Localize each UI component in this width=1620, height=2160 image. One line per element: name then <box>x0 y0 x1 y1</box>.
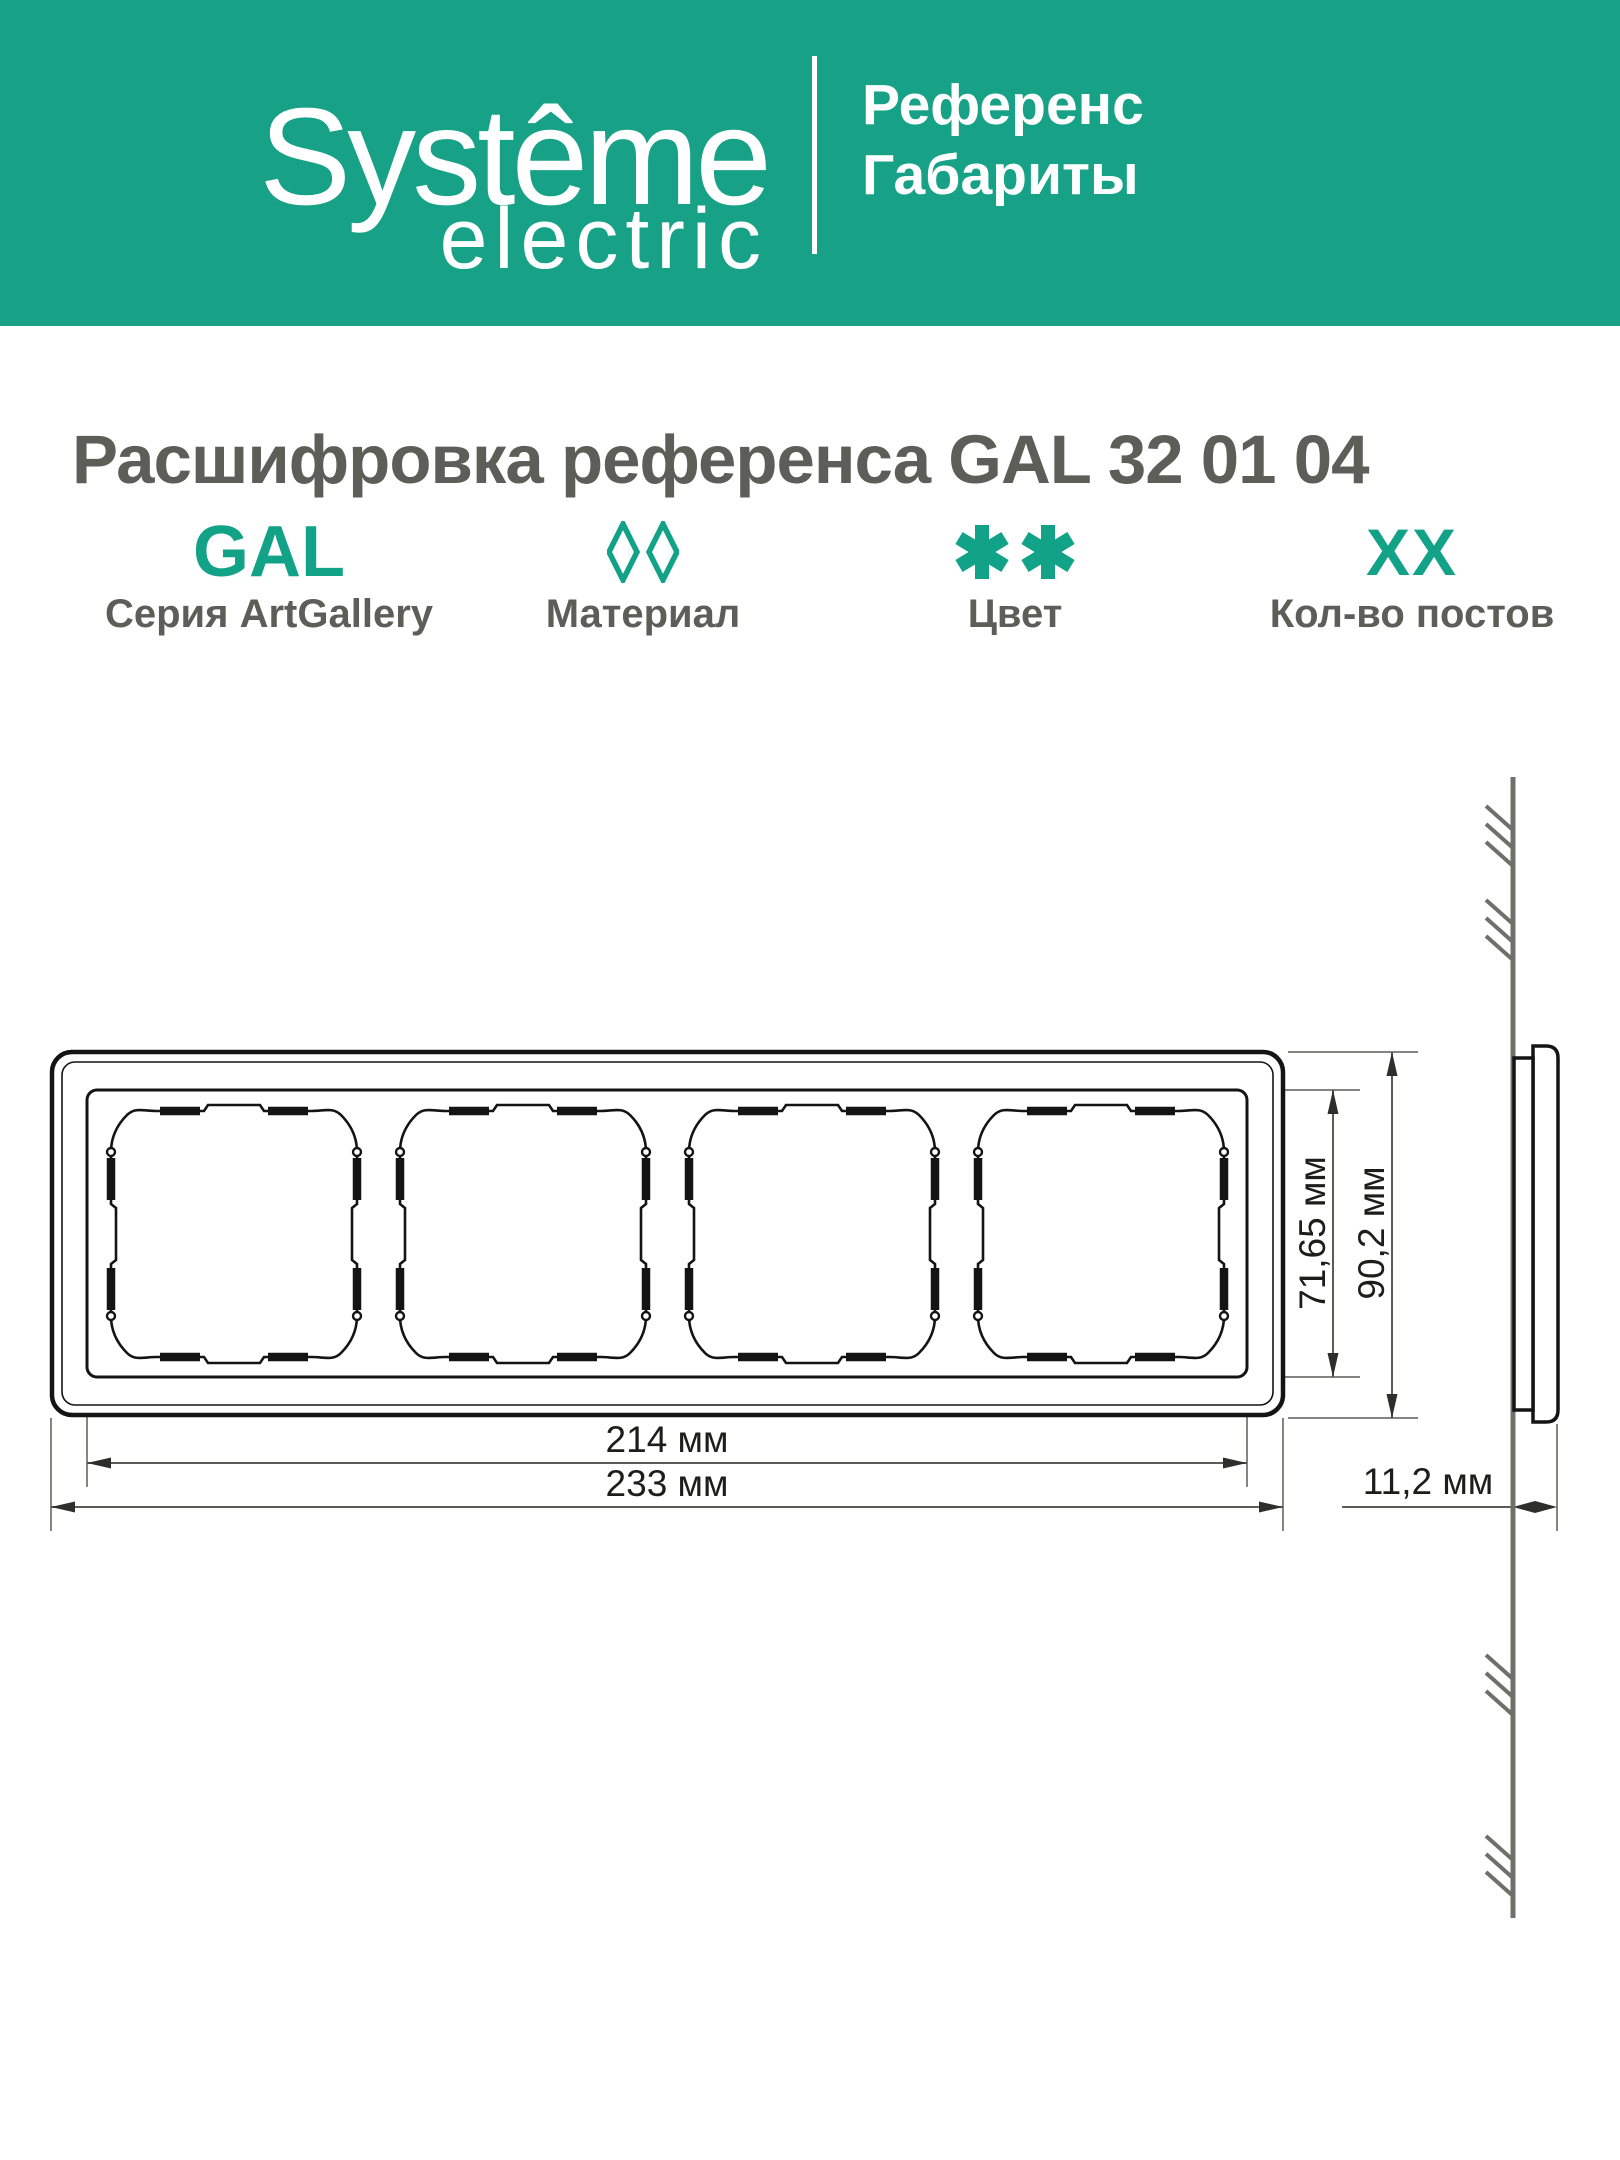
dim-inner-height: 71,65 мм <box>1293 1123 1333 1343</box>
color-asterisks-icon <box>825 520 1205 584</box>
color-label: Цвет <box>825 592 1205 637</box>
series-label: Серия ArtGallery <box>79 592 459 637</box>
posts-label: Кол-во постов <box>1222 592 1602 637</box>
page-title: Расшифровка референса GAL 32 01 04 <box>72 420 1368 499</box>
frame-side-view <box>1486 777 1558 1918</box>
legend-item-color: Цвет <box>825 520 1205 660</box>
material-diamonds-icon <box>453 520 833 584</box>
header-band <box>0 0 1620 326</box>
series-code: GAL <box>79 520 459 584</box>
legend-item-posts: XX Кол-во постов <box>1222 520 1602 660</box>
doc-type-title: Референс Габариты <box>862 70 1144 210</box>
header-divider <box>812 56 817 254</box>
legend-item-material: Материал <box>453 520 833 660</box>
profile-front-slab <box>1533 1046 1558 1422</box>
frame-front-view <box>52 1052 1283 1415</box>
brand-logo-electric: electric <box>440 196 768 282</box>
dim-depth: 11,2 мм <box>1318 1462 1538 1502</box>
material-label: Материал <box>453 592 833 637</box>
legend-item-series: GAL Серия ArtGallery <box>79 520 459 660</box>
technical-drawing <box>0 740 1620 2000</box>
profile-back-strip <box>1514 1058 1533 1410</box>
posts-code: XX <box>1222 520 1602 584</box>
dim-outer-width: 233 мм <box>557 1464 777 1504</box>
dim-outer-height: 90,2 мм <box>1352 1123 1392 1343</box>
dim-inner-width: 214 мм <box>557 1420 777 1460</box>
wall-hatching <box>1486 806 1513 1896</box>
